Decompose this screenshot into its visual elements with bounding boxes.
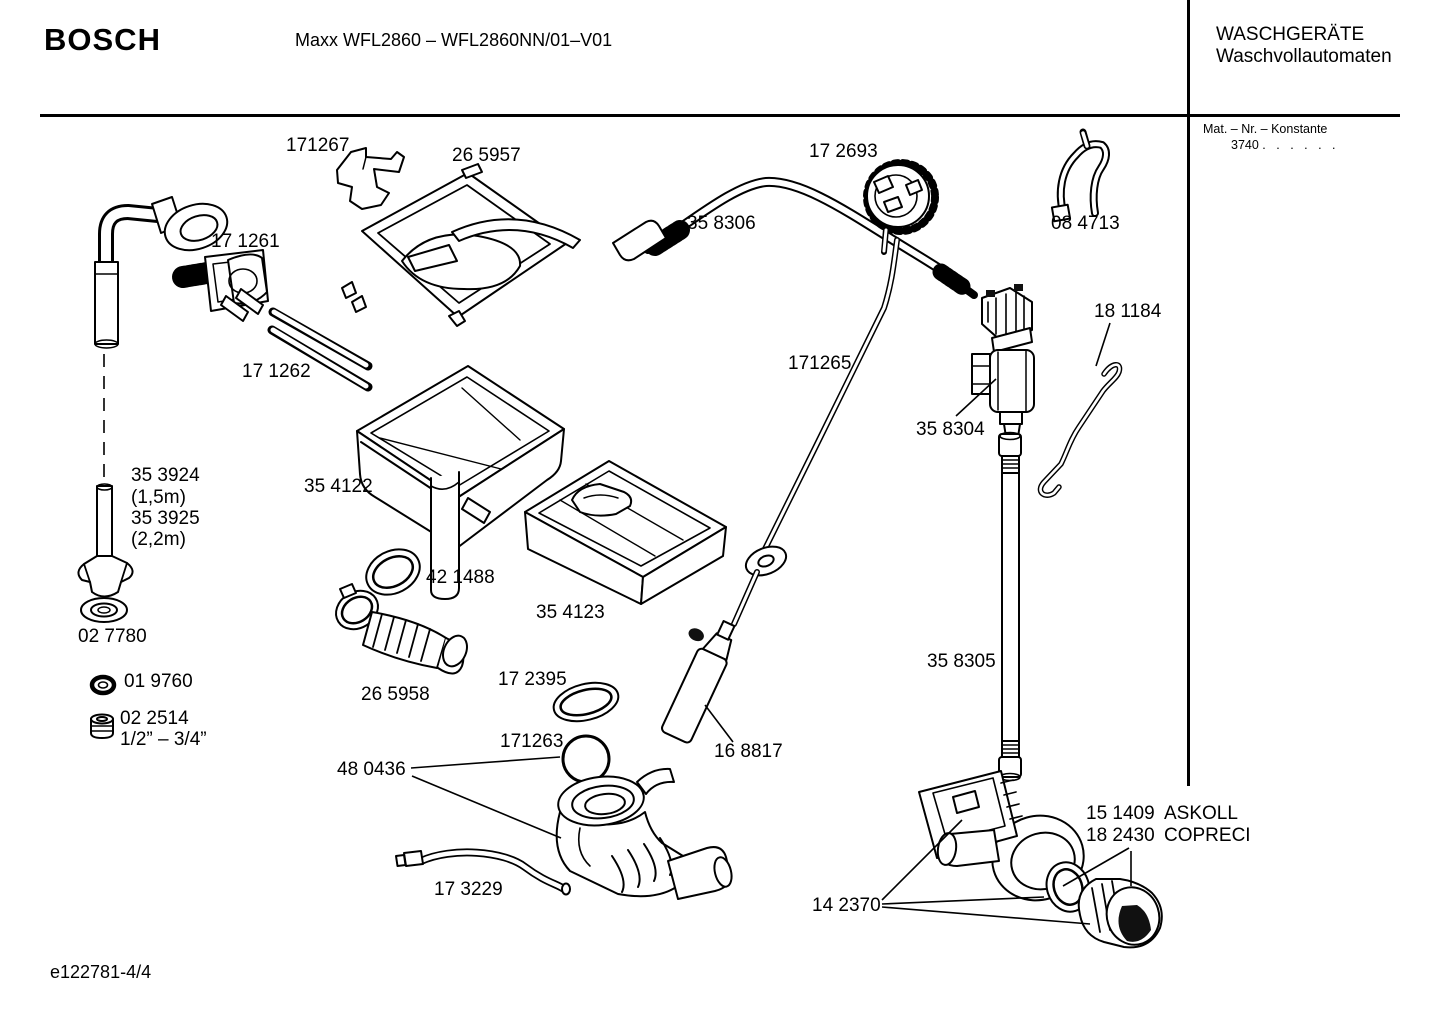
part-label-019760: 01 9760	[124, 672, 193, 693]
part-label-358304: 35 8304	[916, 420, 985, 441]
part-label-151409: 15 1409	[1086, 804, 1155, 825]
part-label-265957: 26 5957	[452, 146, 521, 167]
part-label-171265: 171265	[788, 354, 851, 375]
part-label-151409-manufacturer: ASKOLL	[1164, 804, 1238, 825]
drawer-drawing-354123	[525, 461, 726, 604]
drain-hose-drawing-358305	[999, 433, 1021, 781]
part-label-480436: 48 0436	[337, 760, 406, 781]
part-label-353925: 35 3925	[131, 509, 200, 530]
parts-diagram-page: BOSCH Maxx WFL2860 – WFL2860NN/01–V01 WA…	[0, 0, 1442, 1019]
part-label-172693: 17 2693	[809, 142, 878, 163]
part-label-181184: 18 1184	[1094, 302, 1161, 323]
part-label-182430-manufacturer: COPRECI	[1164, 826, 1251, 847]
part-label-171263: 171263	[500, 732, 563, 753]
bracket-drawing-171267	[337, 148, 404, 209]
pressure-switch-drawing-172693	[867, 163, 935, 252]
part-label-171261: 17 1261	[211, 232, 280, 253]
ring-drawing-171263	[563, 736, 609, 782]
part-label-084713: 08 4713	[1051, 214, 1120, 235]
part-label-022514: 02 2514	[120, 709, 189, 730]
inlet-valve-drawing-171261	[183, 250, 268, 321]
part-label-354122: 35 4122	[304, 477, 373, 498]
part-label-421488: 42 1488	[426, 568, 495, 589]
part-label-022514-size: 1/2” – 3/4”	[120, 730, 207, 751]
cartridge-drawing-168817	[646, 610, 743, 744]
document-number: e122781-4/4	[50, 963, 151, 983]
wire-drawing-181184	[1040, 365, 1119, 495]
part-label-172395: 17 2395	[498, 670, 567, 691]
part-label-182430: 18 2430	[1086, 826, 1155, 847]
diagram-canvas	[0, 0, 1442, 1019]
part-label-027780: 02 7780	[78, 627, 147, 648]
part-label-353924-length: (1,5m)	[131, 488, 186, 509]
washer-drawing-027780	[81, 598, 127, 622]
part-label-168817: 16 8817	[714, 742, 783, 763]
part-label-358306: 35 8306	[687, 214, 756, 235]
part-label-142370: 14 2370	[812, 896, 881, 917]
pressure-hose-drawing-171265	[734, 240, 897, 624]
part-label-358305: 35 8305	[927, 652, 996, 673]
part-label-173229: 17 3229	[434, 880, 503, 901]
sump-elbow-drawing	[555, 769, 734, 899]
part-label-171267: 171267	[286, 136, 349, 157]
part-label-265958: 26 5958	[361, 685, 430, 706]
gasket-drawing-022514	[91, 715, 113, 739]
part-label-354123: 35 4123	[536, 603, 605, 624]
part-label-353924: 35 3924	[131, 466, 200, 487]
y-hose-drawing-084713	[1052, 132, 1106, 221]
standpipe-end-drawing	[78, 484, 132, 597]
gasket-drawing-019760	[92, 677, 114, 693]
part-label-171262: 17 1262	[242, 362, 311, 383]
part-label-353925-length: (2,2m)	[131, 530, 186, 551]
pump-filter-cap-drawing	[1079, 879, 1167, 952]
